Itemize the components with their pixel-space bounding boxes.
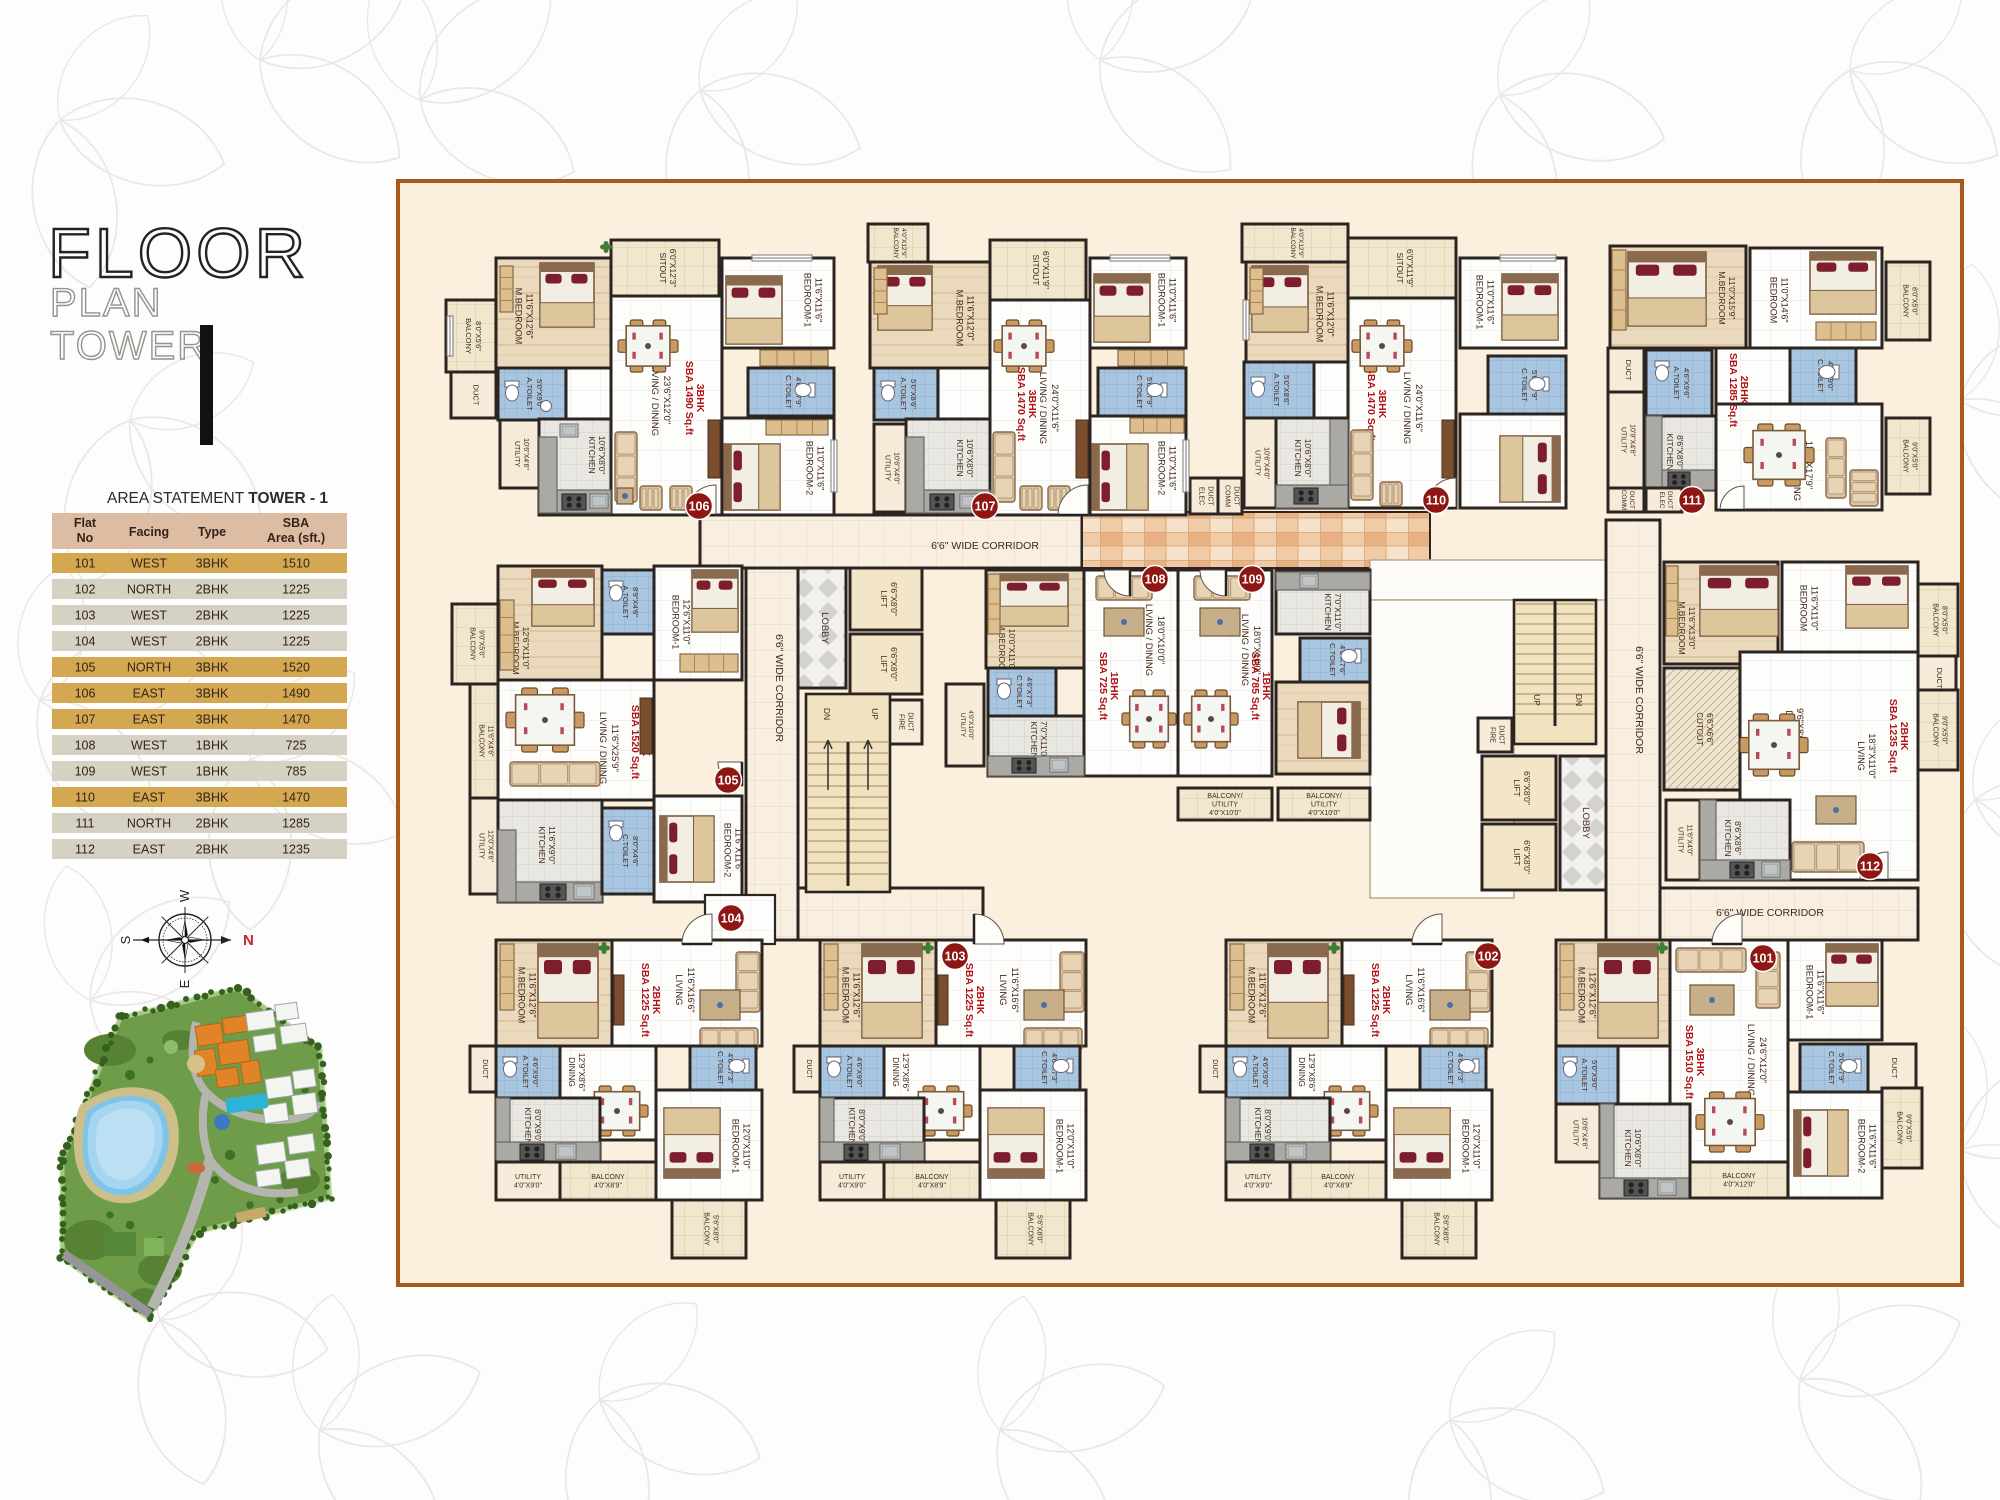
svg-text:10'6"X4'6": 10'6"X4'6"	[1581, 1117, 1588, 1149]
svg-text:10'0"X11'0": 10'0"X11'0"	[1007, 629, 1017, 672]
svg-text:TOWER: TOWER	[50, 324, 208, 368]
svg-text:DUCT: DUCT	[1498, 725, 1505, 745]
svg-text:SBA 1470 Sq.ft: SBA 1470 Sq.ft	[1015, 367, 1027, 442]
svg-text:4'6"X9'6": 4'6"X9'6"	[1682, 368, 1691, 398]
svg-text:1510: 1510	[282, 557, 310, 571]
svg-text:UTILITY: UTILITY	[959, 713, 966, 738]
svg-text:24'0"X11'6": 24'0"X11'6"	[1413, 384, 1424, 432]
svg-text:BEDROOM-2: BEDROOM-2	[805, 441, 815, 496]
svg-text:BALCONY: BALCONY	[1902, 439, 1909, 473]
svg-text:11'6"X16'6": 11'6"X16'6"	[1010, 967, 1020, 1012]
svg-text:BALCONY: BALCONY	[464, 318, 473, 354]
svg-text:SBA 1225 Sq.ft: SBA 1225 Sq.ft	[963, 963, 975, 1038]
svg-text:BALCONY: BALCONY	[892, 227, 899, 259]
svg-text:BALCONY/: BALCONY/	[1306, 793, 1341, 800]
svg-text:C.TOILET: C.TOILET	[1827, 1051, 1836, 1085]
svg-text:11'6"X11'6": 11'6"X11'6"	[814, 278, 824, 323]
svg-text:LIVING / DINING: LIVING / DINING	[1745, 1024, 1756, 1096]
svg-text:UTILITY: UTILITY	[513, 441, 520, 467]
svg-text:UTILITY: UTILITY	[1620, 427, 1627, 453]
svg-text:WEST: WEST	[131, 739, 167, 753]
svg-text:SBA 1520 Sq.ft: SBA 1520 Sq.ft	[629, 705, 641, 780]
svg-text:112: 112	[1860, 860, 1880, 874]
svg-text:A.TOILET: A.TOILET	[1272, 373, 1281, 407]
svg-text:107: 107	[975, 500, 996, 514]
svg-text:A.TOILET: A.TOILET	[1672, 366, 1681, 400]
svg-text:18'0"X10'0": 18'0"X10'0"	[1155, 616, 1166, 664]
svg-text:6'6" WIDE CORRIDOR: 6'6" WIDE CORRIDOR	[773, 634, 785, 742]
svg-text:E: E	[177, 979, 192, 988]
svg-text:EAST: EAST	[133, 713, 166, 727]
svg-text:DUCT: DUCT	[1628, 491, 1635, 509]
svg-text:9'0"X5'0": 9'0"X5'0"	[1911, 442, 1918, 470]
svg-text:No: No	[77, 531, 94, 545]
svg-text:4'0"X9'0": 4'0"X9'0"	[1244, 1183, 1272, 1190]
svg-text:KITCHEN: KITCHEN	[1323, 593, 1333, 630]
svg-text:LIVING / DINING: LIVING / DINING	[1401, 372, 1412, 444]
svg-text:BALCONY: BALCONY	[1932, 713, 1939, 747]
svg-text:1235: 1235	[282, 843, 310, 857]
svg-text:11'0"X11'6": 11'0"X11'6"	[1486, 280, 1496, 325]
svg-text:BEDROOM-2: BEDROOM-2	[1157, 441, 1167, 496]
svg-text:5'6"X8'0": 5'6"X8'0"	[1036, 1215, 1043, 1243]
svg-text:DUCT: DUCT	[1935, 668, 1944, 689]
svg-text:LIFT: LIFT	[1512, 848, 1522, 865]
svg-text:SBA 1490 Sq.ft: SBA 1490 Sq.ft	[683, 361, 695, 436]
svg-text:BALCONY: BALCONY	[469, 627, 476, 661]
svg-text:DUCT: DUCT	[1666, 491, 1673, 509]
svg-text:DUCT: DUCT	[1211, 1059, 1218, 1079]
svg-text:A.TOILET: A.TOILET	[1580, 1058, 1589, 1092]
svg-text:BALCONY: BALCONY	[1896, 1111, 1903, 1145]
svg-text:LIVING / DINING: LIVING / DINING	[1239, 614, 1250, 686]
svg-text:LIVING: LIVING	[1856, 741, 1866, 771]
svg-text:11'6"X16'6": 11'6"X16'6"	[686, 967, 696, 1012]
svg-text:4'0"X10'0": 4'0"X10'0"	[967, 710, 974, 740]
svg-text:4'0"X12'9": 4'0"X12'9"	[1297, 228, 1304, 258]
svg-text:1225: 1225	[282, 635, 310, 649]
svg-text:A.TOILET: A.TOILET	[521, 1055, 530, 1089]
svg-text:5'0"X8'6": 5'0"X8'6"	[1282, 375, 1291, 405]
svg-text:7'0"X11'0": 7'0"X11'0"	[1333, 593, 1343, 631]
svg-text:4'6"X7'3": 4'6"X7'3"	[1025, 677, 1034, 707]
svg-text:KITCHEN: KITCHEN	[1029, 721, 1039, 758]
svg-text:COMM: COMM	[1224, 485, 1231, 507]
svg-text:106: 106	[689, 500, 710, 514]
svg-text:9'0"X5'0": 9'0"X5'0"	[478, 630, 485, 658]
svg-text:101: 101	[1753, 952, 1774, 966]
svg-text:UTILITY: UTILITY	[884, 455, 891, 481]
svg-text:10'6"X8'0": 10'6"X8'0"	[965, 439, 975, 478]
svg-text:C.TOILET: C.TOILET	[1135, 375, 1144, 409]
svg-text:105: 105	[718, 774, 739, 788]
svg-text:4'0"X12'9": 4'0"X12'9"	[900, 228, 907, 258]
svg-text:Area (sft.): Area (sft.)	[267, 531, 325, 545]
svg-text:BALCONY: BALCONY	[1722, 1173, 1756, 1180]
svg-text:8'0"X9'0": 8'0"X9'0"	[1263, 1109, 1273, 1143]
svg-text:AREA STATEMENT TOWER - 1: AREA STATEMENT TOWER - 1	[107, 490, 328, 507]
svg-text:EAST: EAST	[133, 791, 166, 805]
svg-text:UP: UP	[870, 708, 880, 720]
svg-text:10'6"X8'0": 10'6"X8'0"	[1303, 439, 1313, 478]
svg-text:8'9"X4'6": 8'9"X4'6"	[631, 587, 640, 617]
svg-text:UTILITY: UTILITY	[1311, 802, 1337, 809]
svg-text:SBA 725 Sq.ft: SBA 725 Sq.ft	[1097, 652, 1109, 721]
svg-text:4'0"X10'0": 4'0"X10'0"	[1308, 810, 1340, 817]
svg-text:4'0"X9'0": 4'0"X9'0"	[838, 1183, 866, 1190]
svg-text:110: 110	[1426, 494, 1446, 508]
svg-text:11'6"X11'0": 11'6"X11'0"	[1810, 586, 1820, 631]
svg-text:24'6"X12'0": 24'6"X12'0"	[1758, 1037, 1768, 1083]
svg-text:SBA 1510 Sq.ft: SBA 1510 Sq.ft	[1683, 1025, 1695, 1100]
svg-text:KITCHEN: KITCHEN	[955, 439, 965, 476]
svg-text:DUCT: DUCT	[1890, 1058, 1899, 1079]
svg-text:LIFT: LIFT	[879, 655, 889, 672]
svg-text:10'6"X8'0": 10'6"X8'0"	[1633, 1129, 1643, 1168]
svg-text:N: N	[243, 932, 254, 949]
svg-text:SITOUT: SITOUT	[658, 252, 668, 283]
svg-text:9'0"X5'0": 9'0"X5'0"	[1941, 716, 1948, 744]
svg-text:LIVING / DINING: LIVING / DINING	[649, 364, 660, 436]
svg-text:KITCHEN: KITCHEN	[1723, 819, 1733, 856]
svg-text:BEDROOM-1: BEDROOM-1	[1805, 965, 1815, 1020]
svg-text:FIRE: FIRE	[898, 714, 905, 730]
svg-text:4'0"X10'0": 4'0"X10'0"	[1209, 810, 1241, 817]
svg-text:BEDROOM-2: BEDROOM-2	[723, 823, 733, 878]
svg-text:4'0"X8'9": 4'0"X8'9"	[918, 1183, 946, 1190]
svg-text:785: 785	[286, 765, 307, 779]
svg-text:5'0"X8'6": 5'0"X8'6"	[909, 379, 918, 409]
svg-text:105: 105	[75, 661, 96, 675]
svg-text:FIRE: FIRE	[1489, 727, 1496, 743]
svg-text:3BHK: 3BHK	[196, 661, 229, 675]
svg-text:COMM: COMM	[1620, 490, 1627, 511]
svg-text:LIVING: LIVING	[997, 974, 1008, 1005]
svg-text:11'6"X4'0": 11'6"X4'0"	[1686, 824, 1693, 856]
svg-text:2BHK: 2BHK	[196, 583, 229, 597]
svg-text:4'0"X12'0": 4'0"X12'0"	[1723, 1182, 1755, 1189]
svg-text:6'6"X8'0": 6'6"X8'0"	[889, 582, 899, 616]
svg-text:DUCT: DUCT	[907, 712, 914, 732]
svg-text:8'0"X5'0": 8'0"X5'0"	[1911, 287, 1918, 315]
svg-text:111: 111	[1682, 494, 1702, 508]
svg-text:11'6"X12'0": 11'6"X12'0"	[966, 295, 976, 340]
svg-text:12'0"X11'0": 12'0"X11'0"	[1066, 1123, 1076, 1168]
svg-text:LIFT: LIFT	[879, 590, 889, 607]
svg-text:WEST: WEST	[131, 557, 167, 571]
svg-text:LIVING / DINING: LIVING / DINING	[1143, 604, 1154, 676]
svg-text:ELEC: ELEC	[1658, 492, 1665, 509]
svg-text:2BHK: 2BHK	[196, 817, 229, 831]
svg-text:PLAN: PLAN	[50, 281, 163, 325]
svg-text:UTILITY: UTILITY	[1254, 450, 1261, 476]
svg-text:CUTOUT: CUTOUT	[1695, 712, 1704, 745]
svg-text:11'6"X25'9": 11'6"X25'9"	[609, 724, 620, 772]
svg-text:M.BEDROOM: M.BEDROOM	[1717, 271, 1727, 324]
svg-text:DINING: DINING	[891, 1057, 901, 1087]
svg-text:BEDROOM-1: BEDROOM-1	[1157, 273, 1167, 328]
svg-text:1470: 1470	[282, 713, 310, 727]
svg-text:DUCT: DUCT	[1624, 360, 1633, 381]
svg-text:KITCHEN: KITCHEN	[1293, 439, 1303, 476]
svg-text:DUCT: DUCT	[1207, 486, 1214, 506]
svg-text:11'0"X14'6": 11'0"X14'6"	[1780, 277, 1790, 322]
svg-text:NORTH: NORTH	[127, 583, 171, 597]
svg-text:S: S	[118, 935, 133, 944]
svg-text:UTILITY: UTILITY	[1212, 802, 1238, 809]
svg-text:BALCONY: BALCONY	[1902, 284, 1909, 318]
svg-text:10'9"X4'6": 10'9"X4'6"	[1629, 424, 1636, 456]
svg-text:3BHK: 3BHK	[196, 557, 229, 571]
svg-text:8'6"X8'0": 8'6"X8'0"	[1675, 435, 1685, 469]
svg-text:UTILITY: UTILITY	[1245, 1174, 1271, 1181]
svg-text:6'6"X8'0": 6'6"X8'0"	[1522, 840, 1532, 874]
svg-text:C.TOILET: C.TOILET	[1520, 368, 1529, 402]
svg-text:12'9"X8'6": 12'9"X8'6"	[577, 1053, 587, 1092]
svg-text:KITCHEN: KITCHEN	[1623, 1129, 1633, 1166]
svg-text:UTILITY: UTILITY	[515, 1174, 541, 1181]
svg-text:NORTH: NORTH	[127, 661, 171, 675]
svg-text:KITCHEN: KITCHEN	[1253, 1107, 1263, 1144]
svg-text:5'6"X8'0": 5'6"X8'0"	[712, 1215, 719, 1243]
svg-text:109: 109	[75, 765, 96, 779]
svg-text:11'6"X12'6": 11'6"X12'6"	[852, 972, 862, 1017]
svg-text:11'0"X11'6": 11'0"X11'6"	[1168, 446, 1178, 491]
svg-text:12'9"X8'6": 12'9"X8'6"	[1307, 1053, 1317, 1092]
svg-text:UTILITY: UTILITY	[1572, 1120, 1579, 1146]
svg-text:C.TOILET: C.TOILET	[1040, 1051, 1049, 1085]
svg-text:EAST: EAST	[133, 843, 166, 857]
svg-text:4'6"X9'0": 4'6"X9'0"	[855, 1057, 864, 1087]
svg-text:WEST: WEST	[131, 635, 167, 649]
svg-text:SBA 1225 Sq.ft: SBA 1225 Sq.ft	[1369, 963, 1381, 1038]
svg-text:12'9"X8'6": 12'9"X8'6"	[901, 1053, 911, 1092]
svg-text:SBA 785 Sq.ft: SBA 785 Sq.ft	[1249, 652, 1261, 721]
svg-text:8'0"X4'6": 8'0"X4'6"	[631, 836, 640, 866]
svg-text:LIVING: LIVING	[673, 974, 684, 1005]
svg-text:LIFT: LIFT	[1512, 779, 1522, 796]
svg-text:103: 103	[75, 609, 96, 623]
svg-text:ELEC: ELEC	[1198, 487, 1205, 505]
svg-text:2BHK: 2BHK	[196, 843, 229, 857]
svg-text:110: 110	[75, 791, 95, 805]
svg-text:DINING: DINING	[1297, 1057, 1307, 1087]
svg-text:WEST: WEST	[131, 765, 167, 779]
svg-text:SBA 1225 Sq.ft: SBA 1225 Sq.ft	[639, 963, 651, 1038]
svg-text:BEDROOM-1: BEDROOM-1	[1055, 1119, 1065, 1174]
svg-text:3BHK: 3BHK	[196, 791, 229, 805]
svg-text:LOBBY: LOBBY	[1580, 807, 1591, 839]
svg-text:DUCT: DUCT	[472, 385, 481, 406]
svg-text:4'0"X9'0": 4'0"X9'0"	[514, 1183, 542, 1190]
svg-text:BALCONY: BALCONY	[1433, 1212, 1440, 1246]
svg-text:BALCONY: BALCONY	[1289, 227, 1296, 259]
svg-text:6'0"X12'3": 6'0"X12'3"	[668, 249, 678, 288]
svg-text:M.BEDROOM: M.BEDROOM	[514, 288, 524, 345]
svg-text:104: 104	[721, 912, 742, 926]
svg-text:2BHK: 2BHK	[196, 635, 229, 649]
svg-text:2BHK: 2BHK	[196, 609, 229, 623]
svg-text:DN: DN	[822, 708, 832, 720]
svg-text:8'0"X9'0": 8'0"X9'0"	[857, 1109, 867, 1143]
svg-text:BEDROOM: BEDROOM	[1769, 277, 1779, 324]
svg-text:UTILITY: UTILITY	[478, 833, 485, 859]
svg-text:UTILITY: UTILITY	[1677, 827, 1684, 853]
svg-text:BEDROOM-2: BEDROOM-2	[1857, 1119, 1867, 1174]
svg-text:M.BEDROOM: M.BEDROOM	[955, 290, 965, 347]
svg-text:A.TOILET: A.TOILET	[899, 377, 908, 411]
svg-text:SITOUT: SITOUT	[1031, 254, 1041, 285]
svg-text:8'6"X8'6": 8'6"X8'6"	[1733, 821, 1743, 855]
svg-text:EAST: EAST	[133, 687, 166, 701]
svg-text:5'6"X8'0": 5'6"X8'0"	[1442, 1215, 1449, 1243]
svg-text:18'3"X11'0": 18'3"X11'0"	[1867, 733, 1877, 778]
svg-text:SBA 1285 Sq.ft: SBA 1285 Sq.ft	[1727, 353, 1739, 428]
svg-text:107: 107	[75, 713, 96, 727]
svg-text:9'0"X5'0": 9'0"X5'0"	[1905, 1114, 1912, 1142]
svg-text:103: 103	[945, 950, 966, 964]
svg-text:6'6" WIDE CORRIDOR: 6'6" WIDE CORRIDOR	[1633, 646, 1645, 754]
svg-text:BALCONY: BALCONY	[915, 1174, 949, 1181]
svg-text:1225: 1225	[282, 583, 310, 597]
svg-text:SBA: SBA	[283, 516, 309, 530]
svg-text:KITCHEN: KITCHEN	[587, 436, 597, 473]
svg-text:Facing: Facing	[129, 525, 169, 539]
svg-text:DUCT: DUCT	[1233, 486, 1240, 506]
svg-text:M.BEDROOM: M.BEDROOM	[1247, 967, 1257, 1024]
svg-text:M.BEDROOM: M.BEDROOM	[1315, 286, 1325, 343]
svg-text:1520: 1520	[282, 661, 310, 675]
svg-text:11'6"X16'6": 11'6"X16'6"	[1416, 967, 1426, 1012]
svg-text:11'6"X9'0": 11'6"X9'0"	[547, 826, 557, 864]
svg-text:Type: Type	[198, 525, 226, 539]
svg-text:LIVING: LIVING	[1403, 974, 1414, 1005]
svg-text:11'6"X12'6": 11'6"X12'6"	[525, 293, 535, 338]
svg-text:KITCHEN: KITCHEN	[847, 1107, 857, 1144]
svg-text:112: 112	[75, 843, 95, 857]
svg-text:6'0"X11'9": 6'0"X11'9"	[1405, 249, 1415, 287]
svg-text:KITCHEN: KITCHEN	[523, 1107, 533, 1144]
svg-text:11'0"X11'6": 11'0"X11'6"	[1168, 278, 1178, 323]
svg-text:6'6" WIDE CORRIDOR: 6'6" WIDE CORRIDOR	[931, 540, 1039, 552]
svg-text:7'0"X11'0": 7'0"X11'0"	[1039, 721, 1049, 759]
svg-text:6'6"X6'6": 6'6"X6'6"	[1705, 713, 1714, 745]
svg-text:1BHK: 1BHK	[196, 739, 229, 753]
svg-text:C.TOILET: C.TOILET	[784, 375, 793, 409]
svg-text:102: 102	[1478, 950, 1499, 964]
svg-text:6'6"X8'0": 6'6"X8'0"	[889, 647, 899, 681]
svg-text:LOBBY: LOBBY	[819, 612, 830, 644]
svg-text:BALCONY: BALCONY	[591, 1174, 625, 1181]
svg-text:KITCHEN: KITCHEN	[1665, 433, 1675, 470]
svg-text:725: 725	[286, 739, 307, 753]
svg-text:C.TOILET: C.TOILET	[621, 834, 630, 868]
svg-text:A.TOILET: A.TOILET	[845, 1055, 854, 1089]
svg-text:5'0"X9'0": 5'0"X9'0"	[1590, 1060, 1599, 1090]
svg-text:BEDROOM-1: BEDROOM-1	[1475, 275, 1485, 330]
svg-text:DUCT: DUCT	[805, 1059, 812, 1079]
svg-text:BEDROOM-1: BEDROOM-1	[731, 1119, 741, 1174]
svg-text:4'6"X9'0": 4'6"X9'0"	[1261, 1057, 1270, 1087]
svg-text:UTILITY: UTILITY	[839, 1174, 865, 1181]
svg-text:12'6"X11'0": 12'6"X11'0"	[521, 627, 531, 670]
svg-text:12'0"X11'0": 12'0"X11'0"	[1472, 1123, 1482, 1168]
svg-text:6'0"X11'9": 6'0"X11'9"	[1041, 251, 1051, 289]
svg-text:108: 108	[75, 739, 96, 753]
svg-text:102: 102	[75, 583, 96, 597]
svg-text:6'6"X8'0": 6'6"X8'0"	[1522, 771, 1532, 805]
svg-text:W: W	[177, 889, 192, 902]
svg-text:BEDROOM-1: BEDROOM-1	[671, 595, 681, 650]
svg-text:4'6"X9'0": 4'6"X9'0"	[531, 1057, 540, 1087]
svg-text:11'6"X11'6": 11'6"X11'6"	[1868, 1124, 1878, 1169]
svg-text:BEDROOM-1: BEDROOM-1	[803, 273, 813, 328]
svg-text:KITCHEN: KITCHEN	[537, 826, 547, 863]
svg-text:1BHK: 1BHK	[196, 765, 229, 779]
svg-text:106: 106	[75, 687, 96, 701]
svg-text:12'6"X12'6": 12'6"X12'6"	[1588, 972, 1598, 1018]
svg-text:SBA 1235 Sq.ft: SBA 1235 Sq.ft	[1887, 699, 1899, 774]
svg-text:24'0"X11'6": 24'0"X11'6"	[1049, 384, 1060, 432]
svg-text:11'6"X4'6": 11'6"X4'6"	[487, 725, 494, 757]
svg-text:8'0"X5'6": 8'0"X5'6"	[474, 321, 483, 351]
svg-text:11'6"X11'6": 11'6"X11'6"	[1816, 970, 1826, 1015]
svg-text:BALCONY: BALCONY	[478, 724, 485, 758]
svg-text:BALCONY: BALCONY	[1932, 603, 1939, 637]
svg-text:1225: 1225	[282, 609, 310, 623]
svg-text:10'6"X4'0": 10'6"X4'0"	[893, 452, 900, 484]
svg-text:11'6"X12'6": 11'6"X12'6"	[1258, 972, 1268, 1017]
svg-text:11'0"X11'6": 11'0"X11'6"	[816, 446, 826, 491]
svg-text:8'0"X5'0": 8'0"X5'0"	[1941, 606, 1948, 634]
svg-text:3BHK: 3BHK	[196, 687, 229, 701]
svg-text:1285: 1285	[282, 817, 310, 831]
svg-text:4'0"X8'9": 4'0"X8'9"	[594, 1183, 622, 1190]
svg-text:C.TOILET: C.TOILET	[716, 1051, 725, 1085]
svg-text:SITOUT: SITOUT	[1395, 252, 1405, 283]
svg-text:BALCONY: BALCONY	[1027, 1212, 1034, 1246]
svg-text:BALCONY: BALCONY	[703, 1212, 710, 1246]
svg-text:108: 108	[1145, 573, 1166, 587]
svg-text:M.BEDROOM: M.BEDROOM	[1577, 967, 1587, 1024]
svg-text:C.TOILET: C.TOILET	[1328, 643, 1337, 677]
svg-text:1490: 1490	[282, 687, 310, 701]
svg-text:M.BEDROOM: M.BEDROOM	[517, 967, 527, 1024]
svg-text:UP: UP	[1532, 694, 1542, 706]
svg-text:NORTH: NORTH	[127, 817, 171, 831]
svg-text:111: 111	[75, 817, 94, 831]
svg-text:DN: DN	[1574, 694, 1584, 706]
svg-text:DUCT: DUCT	[481, 1059, 488, 1079]
svg-text:12'6"X11'0": 12'6"X11'0"	[682, 599, 692, 644]
svg-text:11'6"X12'6": 11'6"X12'6"	[528, 972, 538, 1017]
svg-text:11'0"X15'9": 11'0"X15'9"	[1727, 277, 1737, 320]
svg-text:11'6"X13'0": 11'6"X13'0"	[1687, 607, 1697, 650]
svg-text:11'6"X11'6": 11'6"X11'6"	[734, 828, 744, 873]
svg-text:WEST: WEST	[131, 609, 167, 623]
svg-text:M.BEDROOM: M.BEDROOM	[841, 967, 851, 1024]
svg-text:109: 109	[1242, 573, 1263, 587]
svg-text:C.TOILET: C.TOILET	[1446, 1051, 1455, 1085]
svg-text:Flat: Flat	[74, 516, 97, 530]
svg-text:BEDROOM: BEDROOM	[1799, 585, 1809, 632]
svg-text:10'6"X8'0": 10'6"X8'0"	[597, 436, 607, 475]
svg-text:8'0"X9'0": 8'0"X9'0"	[533, 1109, 543, 1143]
svg-text:4'0"X8'9": 4'0"X8'9"	[1324, 1183, 1352, 1190]
svg-text:3BHK: 3BHK	[196, 713, 229, 727]
svg-text:10'6"X4'6": 10'6"X4'6"	[522, 438, 529, 470]
svg-text:10'6"X4'0": 10'6"X4'0"	[1263, 447, 1270, 479]
